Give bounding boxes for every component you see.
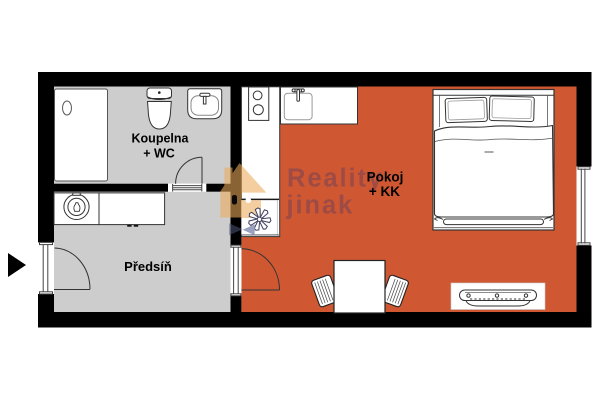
svg-text:Předsíň: Předsíň bbox=[124, 259, 172, 274]
svg-text:+ KK: + KK bbox=[369, 184, 400, 199]
svg-text:Koupelna: Koupelna bbox=[132, 132, 190, 146]
svg-text:jinak: jinak bbox=[286, 192, 355, 220]
svg-text:+ WC: + WC bbox=[143, 147, 175, 161]
svg-text:Pokoj: Pokoj bbox=[367, 170, 404, 185]
